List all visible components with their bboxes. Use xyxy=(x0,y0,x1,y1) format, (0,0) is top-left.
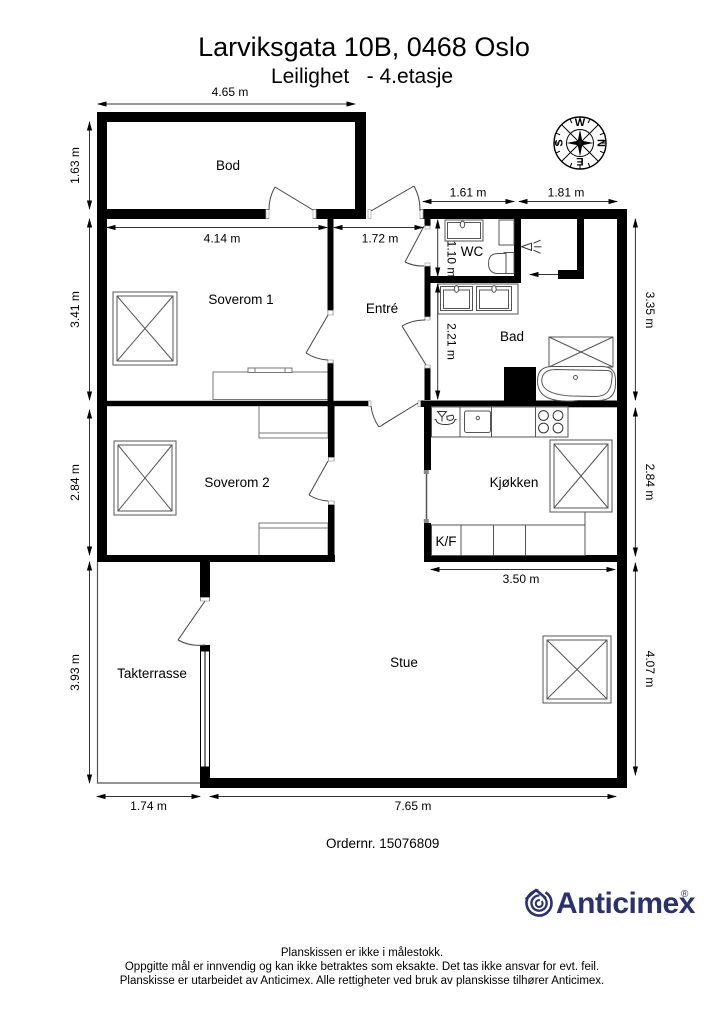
svg-text:3.50 m: 3.50 m xyxy=(503,572,540,586)
svg-text:K/F: K/F xyxy=(435,534,456,549)
svg-text:1.72 m: 1.72 m xyxy=(362,232,399,246)
svg-text:Larviksgata 10B, 0468 Oslo: Larviksgata 10B, 0468 Oslo xyxy=(198,32,530,62)
svg-text:Bad: Bad xyxy=(500,329,524,344)
svg-text:4.65 m: 4.65 m xyxy=(212,85,249,99)
svg-text:1.81 m: 1.81 m xyxy=(548,186,585,200)
svg-text:1.74 m: 1.74 m xyxy=(130,799,167,813)
svg-text:Entré: Entré xyxy=(366,301,398,316)
svg-text:Bod: Bod xyxy=(216,158,240,173)
svg-text:Kjøkken: Kjøkken xyxy=(490,475,539,490)
svg-text:Soverom 2: Soverom 2 xyxy=(204,475,269,490)
svg-text:3.35 m: 3.35 m xyxy=(643,292,657,329)
svg-text:WC: WC xyxy=(461,244,484,259)
svg-text:Stue: Stue xyxy=(390,655,418,670)
svg-text:E: E xyxy=(576,155,583,167)
svg-text:S: S xyxy=(554,139,566,146)
svg-text:Oppgitte mål er innvendig og k: Oppgitte mål er innvendig og kan ikke be… xyxy=(125,961,599,973)
svg-text:Soverom 1: Soverom 1 xyxy=(208,292,273,307)
svg-text:®: ® xyxy=(681,889,689,900)
svg-text:W: W xyxy=(575,117,586,129)
svg-text:4.14 m: 4.14 m xyxy=(204,232,241,246)
svg-text:1.63 m: 1.63 m xyxy=(68,147,82,184)
svg-text:N: N xyxy=(595,139,607,147)
svg-text:2.84 m: 2.84 m xyxy=(68,464,82,501)
svg-text:1.61 m: 1.61 m xyxy=(450,186,487,200)
svg-text:2.84 m: 2.84 m xyxy=(643,464,657,501)
svg-text:4.07 m: 4.07 m xyxy=(643,651,657,688)
svg-text:3.41 m: 3.41 m xyxy=(68,291,82,328)
svg-text:7.65 m: 7.65 m xyxy=(395,799,432,813)
svg-text:2.21 m: 2.21 m xyxy=(445,323,459,360)
svg-text:Anticimex: Anticimex xyxy=(556,887,696,920)
svg-text:Ordernr. 15076809: Ordernr. 15076809 xyxy=(326,836,439,851)
svg-text:1.10 m: 1.10 m xyxy=(445,241,459,278)
svg-text:Leilighet - 4.etasje: Leilighet - 4.etasje xyxy=(271,65,453,88)
svg-text:Planskisse er utarbeidet av An: Planskisse er utarbeidet av Anticimex. A… xyxy=(120,975,605,987)
svg-text:Planskissen er ikke i målestok: Planskissen er ikke i målestokk. xyxy=(281,947,443,959)
svg-text:Takterrasse: Takterrasse xyxy=(117,666,187,681)
svg-text:3.93 m: 3.93 m xyxy=(68,654,82,691)
